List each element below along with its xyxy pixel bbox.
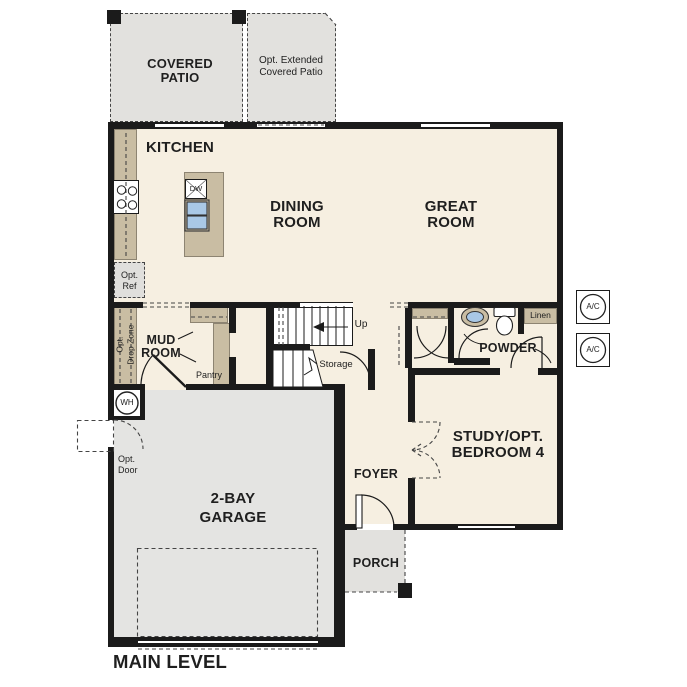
floor-plan: COVEREDPATIO Opt. ExtendedCovered Patio … [0,0,687,687]
wall [454,358,490,365]
wall [345,524,357,530]
pantry-label: Pantry [184,371,234,380]
wall [140,390,145,418]
room-label-garage: 2-BAYGARAGE [183,490,283,528]
wall [557,129,563,530]
wall [405,308,412,368]
wall [538,368,563,375]
wall [408,478,415,524]
window [257,123,325,128]
opt-door-label: Opt.Door [118,454,138,476]
wall [114,416,145,420]
room-label-covered-patio: COVEREDPATIO [130,57,230,84]
window [155,123,224,128]
window [421,123,490,128]
room-label-porch: PORCH [346,557,406,570]
plan-title: MAIN LEVEL [113,652,227,671]
garage-door-opening [138,640,318,644]
wall [334,384,345,647]
wall [448,308,454,363]
wall [108,384,145,390]
wall [398,583,412,598]
wall [408,302,563,308]
window [458,525,515,529]
wall [186,384,342,390]
wall [108,447,114,647]
wall [272,344,310,350]
linen-label: Linen [524,311,557,320]
room-label-great: GREATROOM [401,199,501,231]
up-label: Up [351,320,371,331]
room-label-kitchen: KITCHEN [146,140,214,156]
wall [393,524,412,530]
ac-label: A/C [576,303,610,311]
room-label-extended-patio: Opt. ExtendedCovered Patio [251,55,331,78]
room-label-study: STUDY/OPT.BEDROOM 4 [428,429,568,461]
wall [108,129,114,390]
wall [408,368,500,375]
wh-label: WH [114,399,140,407]
ac-label: A/C [576,346,610,354]
room-label-powder: POWDER [478,342,538,355]
wall [368,349,375,390]
patio-post [232,10,246,24]
patio-post [107,10,121,24]
room-label-mud: MUDROOM [131,334,191,360]
closet-shelf [412,308,448,319]
room-label-foyer: FOYER [346,468,406,481]
opt-ref-label: Opt.Ref [114,270,145,292]
dishwasher-label: DW [185,185,207,193]
wall [408,375,415,422]
room-label-dining: DININGROOM [247,199,347,231]
cooktop [113,180,139,214]
stair-rail-opening [300,303,353,307]
stairs-upper-flight [273,306,353,346]
wall [229,302,236,333]
storage-label: Storage [314,360,358,370]
